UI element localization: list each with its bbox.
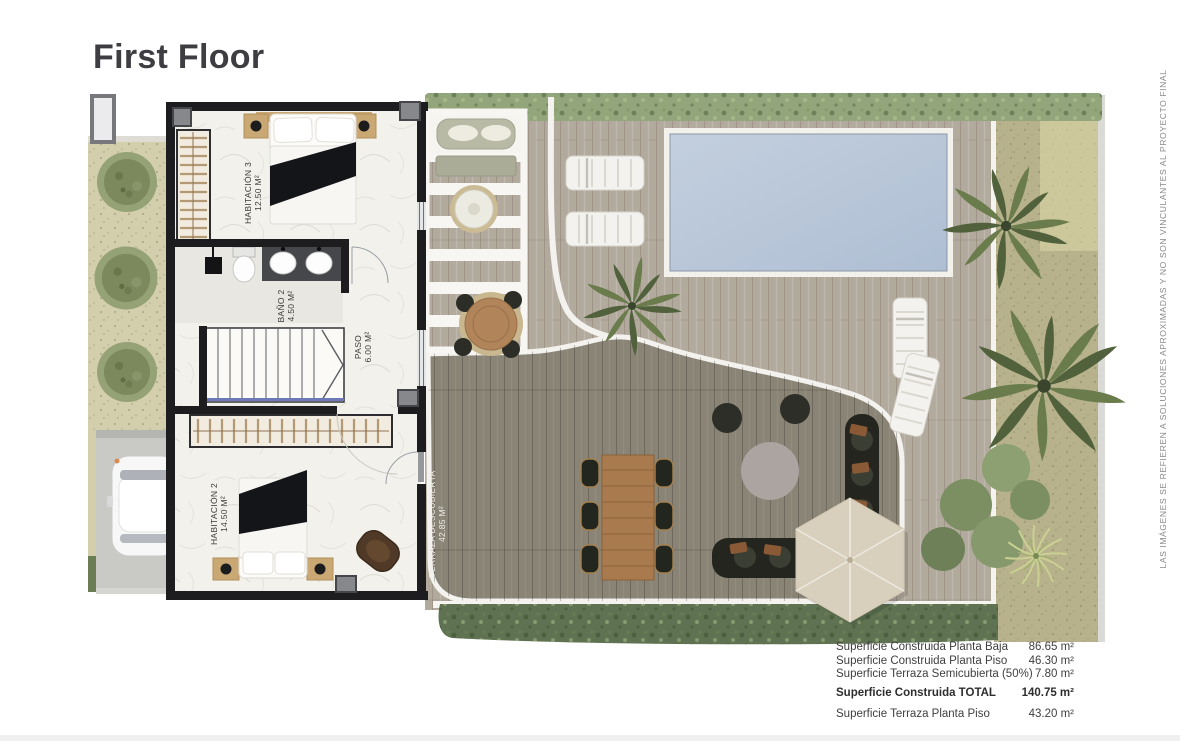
summary-row: Superficie Terraza Planta Piso 43.20 m²	[836, 708, 1074, 722]
sun-lounger	[566, 156, 644, 190]
summary-label: Superficie Construida Planta Piso	[836, 655, 1007, 669]
room-area: 14.50 m²	[219, 483, 229, 545]
room-area: 6.00 m²	[363, 332, 373, 363]
summary-value: 43.20 m²	[1029, 708, 1074, 722]
wardrobe-habitacion-2	[190, 415, 392, 447]
room-name: PASO	[353, 332, 363, 363]
summary-value: 7.80 m²	[1035, 668, 1074, 682]
toilet	[233, 247, 255, 282]
room-label-bano-2: BAÑO 2 4.50 m²	[276, 290, 296, 323]
car-windshield	[120, 470, 170, 480]
summary-value: 86.65 m²	[1029, 641, 1074, 655]
room-area: 42.85 m²	[437, 471, 447, 578]
pouf	[712, 403, 742, 433]
room-label-terraza-descubierta: TERRAZA DESCUBIERTA 42.85 m²	[427, 471, 447, 578]
sun-lounger	[566, 212, 644, 246]
pool	[667, 131, 950, 274]
room-area: 12.50 m²	[253, 162, 263, 224]
summary-row: Superficie Construida Planta Piso 46.30 …	[836, 655, 1074, 669]
pergola-dining-table	[454, 291, 523, 358]
page-edge	[0, 735, 1180, 741]
pouf	[780, 394, 810, 424]
wardrobe-habitacion-3	[177, 130, 210, 244]
room-name: HABITACIÓN 3	[243, 162, 253, 224]
room-name: HABITACIÓN 2	[209, 483, 219, 545]
room-label-habitacion-2: HABITACIÓN 2 14.50 m²	[209, 483, 229, 545]
room-label-habitacion-3: HABITACIÓN 3 12.50 m²	[243, 162, 263, 224]
room-name: BAÑO 2	[276, 290, 286, 323]
summary-value: 140.75 m²	[1022, 687, 1074, 701]
garden-tree	[97, 342, 157, 402]
pergola-bench	[436, 156, 516, 176]
entry-pillar	[92, 96, 114, 142]
area-summary-table: Superficie Construida Planta Baja 86.65 …	[836, 641, 1074, 722]
house	[166, 102, 428, 600]
floorplan-page: First Floor HABITACIÓN 3 12.50 m² BAÑO 2…	[0, 0, 1180, 741]
summary-label: Superficie Construida Planta Baja	[836, 641, 1008, 655]
room-name: TERRAZA DESCUBIERTA	[427, 471, 437, 578]
summary-row: Superficie Terraza Semicubierta (50%) 7.…	[836, 668, 1074, 682]
disclaimer-text: LAS IMÁGENES SE REFIEREN A SOLUCIONES AP…	[1158, 70, 1168, 569]
staircase	[206, 328, 344, 402]
room-area: 4.50 m²	[286, 290, 296, 323]
room-label-paso: PASO 6.00 m²	[353, 332, 373, 363]
outdoor-dining-set	[581, 455, 673, 580]
summary-label: Superficie Construida TOTAL	[836, 687, 996, 701]
page-title: First Floor	[93, 38, 264, 77]
terrace-door	[418, 452, 424, 482]
summary-row: Superficie Construida Planta Baja 86.65 …	[836, 641, 1074, 655]
summary-label: Superficie Terraza Planta Piso	[836, 708, 990, 722]
garden-tree	[97, 152, 157, 212]
hedge-bottom	[439, 604, 999, 644]
pergola-side-table	[450, 185, 498, 233]
summary-row-total: Superficie Construida TOTAL 140.75 m²	[836, 687, 1074, 701]
outdoor-rug	[741, 442, 799, 500]
summary-value: 46.30 m²	[1029, 655, 1074, 669]
garden-tree	[95, 247, 158, 310]
floorplan-graphic	[0, 0, 1180, 741]
bathroom-vanity	[262, 245, 342, 281]
pergola-sofa	[437, 119, 515, 149]
summary-label: Superficie Terraza Semicubierta (50%)	[836, 668, 1033, 682]
